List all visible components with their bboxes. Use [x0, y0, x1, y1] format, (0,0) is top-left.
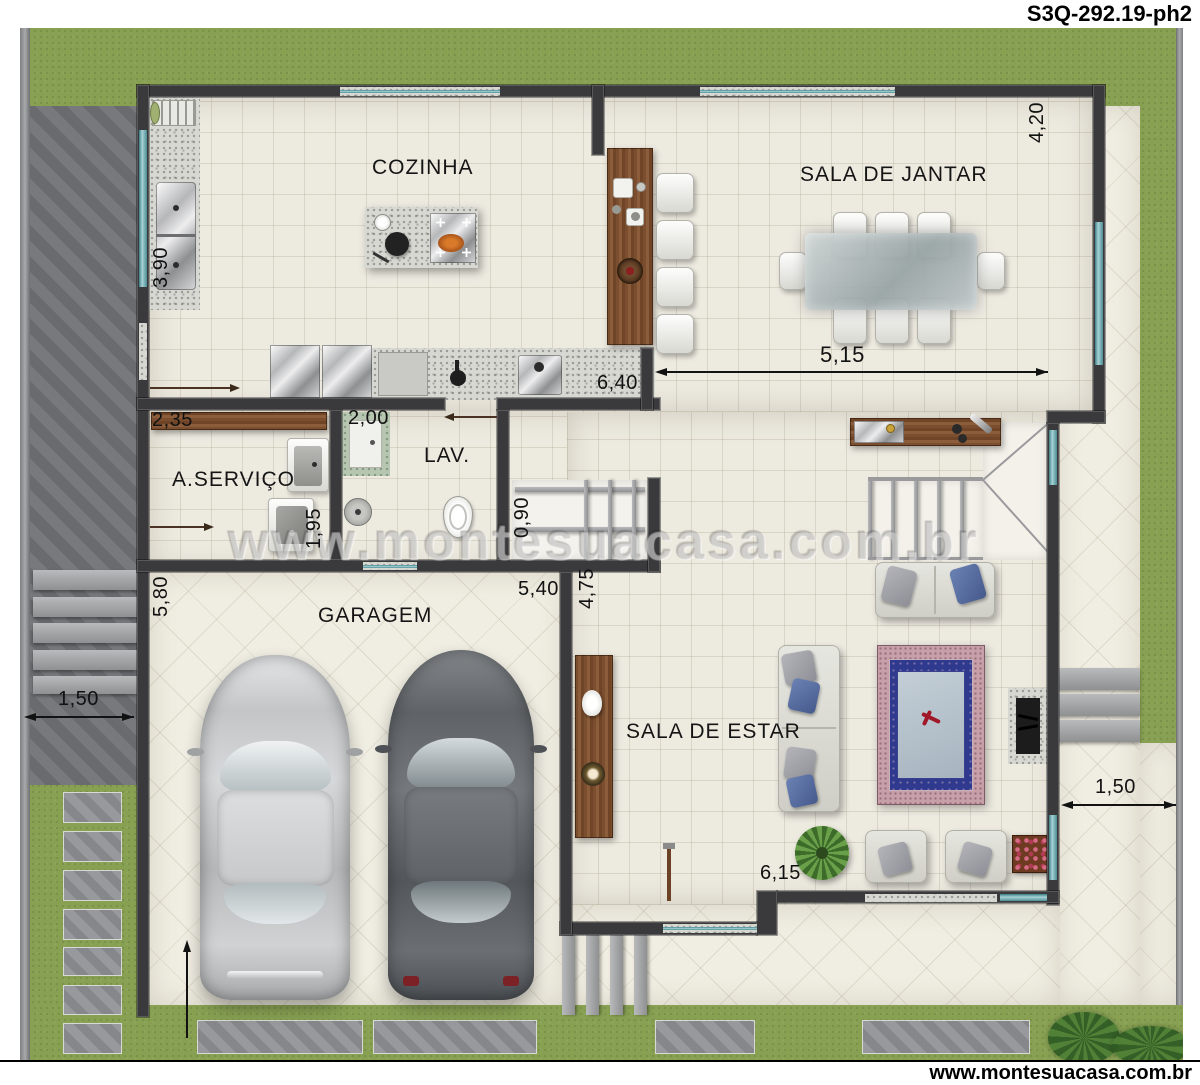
refrigerator-door2 [322, 345, 372, 398]
stair-handrail [868, 477, 983, 481]
flower-pot [1012, 835, 1048, 873]
bar-sink-center [626, 267, 634, 275]
bar-plate [613, 178, 633, 198]
wall-porch-connector [757, 891, 777, 935]
dim-195: 1,95 [303, 508, 326, 549]
dining-table [805, 233, 977, 310]
dim-235: 2,35 [152, 409, 193, 432]
wall-garage-right [560, 572, 572, 935]
sofa-top-seam [934, 566, 936, 614]
entry-arrow-line [186, 950, 188, 1038]
door-arrow-lav [452, 416, 497, 418]
rug-center [897, 671, 965, 779]
bar-stool [656, 314, 694, 354]
dim-line-150-left [28, 716, 134, 718]
dim-540: 5,40 [518, 578, 559, 601]
walkway-step [1057, 720, 1140, 742]
shower-drain [370, 440, 375, 445]
car-roof [217, 790, 334, 887]
yard-step [33, 623, 137, 643]
stepping-stone [63, 1023, 122, 1054]
stepping-stone [63, 985, 122, 1015]
window-top-2-glass [700, 90, 895, 93]
entry-step [610, 935, 623, 1015]
dim-arrow-left [1061, 801, 1073, 809]
margin-left [0, 28, 20, 1060]
bar-bowl [612, 205, 621, 214]
sink-divider [156, 234, 196, 237]
sink-drain [173, 262, 179, 268]
dim-arrow-right [1036, 368, 1048, 376]
laundry-tub-drain [312, 462, 317, 467]
car-mirror [530, 745, 547, 753]
yard-step [33, 650, 137, 670]
fence-right [1176, 28, 1183, 1005]
window-left [139, 130, 147, 287]
website-url: www.montesuacasa.com.br [929, 1062, 1200, 1084]
island-cup [374, 214, 391, 231]
car-rear-chrome [227, 971, 323, 979]
driveway-paver-track [373, 1020, 537, 1054]
sheet-header: S3Q-292.19-ph2 [0, 0, 1200, 28]
frying-pan [385, 232, 409, 256]
floorplan-canvas: 5,15 1,50 1,50 www.montesuacasa.com.br C… [0, 0, 1200, 1085]
plan-code: S3Q-292.19-ph2 [1027, 1, 1200, 26]
refrigerator [270, 345, 320, 398]
sofa-cushion [785, 773, 819, 808]
dim-arrow-left [655, 368, 667, 376]
room-label-a-servico: A.SERVIÇO [172, 468, 295, 492]
bar-plate2-circle [631, 212, 640, 221]
entry-step [586, 935, 599, 1015]
stepping-stone [63, 947, 122, 976]
stepping-stone [63, 870, 122, 901]
driveway-paver-track [862, 1020, 1030, 1054]
wall-jog [1047, 411, 1105, 423]
walkway-step [1057, 694, 1140, 716]
window-dining-right [1095, 222, 1103, 365]
sheet-footer: www.montesuacasa.com.br [0, 1060, 1200, 1085]
car-mirror [375, 745, 392, 753]
dish-rack-plate [150, 102, 160, 124]
sill-left [139, 323, 147, 380]
driveway-paver-track [655, 1020, 755, 1054]
car-taillight [503, 976, 519, 986]
entry-step [562, 935, 575, 1015]
door-arrow-service [150, 526, 206, 528]
dim-640: 6,40 [597, 372, 638, 395]
console-dot [952, 424, 962, 434]
dim-150-right: 1,50 [1095, 776, 1136, 799]
room-label-garagem: GARAGEM [318, 604, 432, 628]
dim-090: 0,90 [511, 497, 534, 538]
palm-plant [1048, 1012, 1120, 1064]
bar-stool [656, 267, 694, 307]
counter-faucet-spout [455, 360, 459, 374]
dim-515: 5,15 [820, 342, 865, 368]
dining-chair [977, 252, 1005, 290]
plant-center [816, 847, 828, 859]
hall-stair-rail [515, 487, 645, 492]
bar-stool [656, 173, 694, 213]
laundry-tub-basin [294, 446, 322, 486]
watermark: www.montesuacasa.com.br [228, 512, 980, 572]
console-tray [854, 421, 904, 443]
dim-arrow-right [1164, 801, 1176, 809]
console-dot [958, 434, 967, 443]
tv-sideboard [575, 655, 613, 838]
wall-kitchen-dining-stub [592, 85, 604, 155]
dim-390: 3,90 [150, 247, 173, 288]
driveway-paver-track [197, 1020, 363, 1054]
window-living-bottom [1000, 894, 1047, 901]
bar-stool [656, 220, 694, 260]
room-label-sala-de-jantar: SALA DE JANTAR [800, 163, 988, 187]
stepping-stone [63, 831, 122, 862]
yard-step [33, 570, 137, 590]
dim-line-150-right [1065, 804, 1176, 806]
entry-arrow-head [183, 940, 191, 952]
window-top-1-glass [340, 90, 500, 93]
door-arrow-lav-head [444, 413, 454, 421]
dim-420: 4,20 [1026, 102, 1049, 143]
stepping-stone [63, 909, 122, 940]
door-arrow-service-head [204, 523, 214, 531]
dim-200: 2,00 [348, 407, 389, 430]
stepping-stone [63, 792, 122, 823]
dim-475: 4,75 [576, 568, 599, 609]
wall-top [137, 85, 1105, 97]
fence-left [20, 28, 30, 1060]
counter-sink2 [518, 355, 562, 395]
dim-arrow-left [24, 713, 36, 721]
walkway-step [1057, 668, 1140, 690]
door-arrow-kitchen [150, 387, 232, 389]
bar-cup [636, 182, 646, 192]
console-cup [886, 424, 895, 433]
car-taillight [403, 976, 419, 986]
dim-arrow-right [122, 713, 134, 721]
room-label-sala-de-estar: SALA DE ESTAR [626, 720, 801, 744]
entry-step [634, 935, 647, 1015]
sideboard-speaker [581, 762, 605, 786]
sideboard-vase [582, 690, 602, 716]
entry-door-leaf [667, 843, 671, 901]
wall-kitchen-bottom-b [497, 398, 660, 410]
dim-615: 6,15 [760, 862, 801, 885]
room-label-lav: LAV. [424, 444, 470, 468]
wall-counter-end [641, 348, 653, 410]
window-stair-east [1049, 430, 1057, 485]
car-gray [388, 650, 534, 1000]
car-roof [404, 787, 518, 885]
sill-armchairs [865, 894, 997, 902]
sink-drain [173, 205, 179, 211]
car-windshield [220, 741, 331, 793]
car-silver [200, 655, 350, 1000]
roast-pan [438, 234, 464, 252]
window-living-right [1049, 815, 1057, 880]
dim-150-left: 1,50 [58, 688, 99, 711]
counter-sink2-faucet [534, 362, 544, 372]
room-label-cozinha: COZINHA [372, 156, 474, 180]
entry-door-knob [663, 843, 675, 849]
yard-step [33, 597, 137, 617]
door-arrow-kitchen-head [230, 384, 240, 392]
dim-line-515 [660, 371, 1048, 373]
window-porch-glass [663, 927, 757, 930]
counter-stove [378, 352, 428, 396]
dim-580: 5,80 [150, 576, 173, 617]
margin-right [1183, 28, 1200, 1060]
dining-chair [779, 252, 807, 290]
